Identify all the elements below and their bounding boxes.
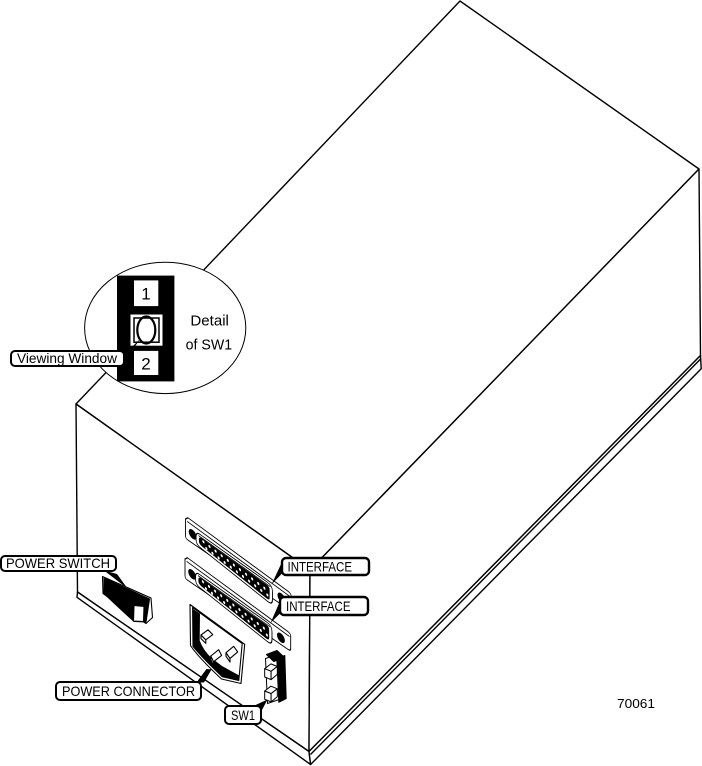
svg-text:POWER SWITCH: POWER SWITCH [6, 555, 110, 571]
svg-text:INTERFACE: INTERFACE [286, 598, 351, 614]
svg-text:1: 1 [141, 285, 150, 304]
svg-text:SW1: SW1 [231, 707, 255, 723]
svg-text:Detail: Detail [190, 312, 229, 329]
svg-text:INTERFACE: INTERFACE [288, 558, 353, 574]
svg-text:of SW1: of SW1 [186, 336, 233, 353]
svg-text:70061: 70061 [617, 696, 655, 711]
svg-text:POWER CONNECTOR: POWER CONNECTOR [62, 683, 195, 699]
svg-text:Viewing Window: Viewing Window [17, 350, 118, 366]
svg-text:2: 2 [141, 355, 150, 374]
